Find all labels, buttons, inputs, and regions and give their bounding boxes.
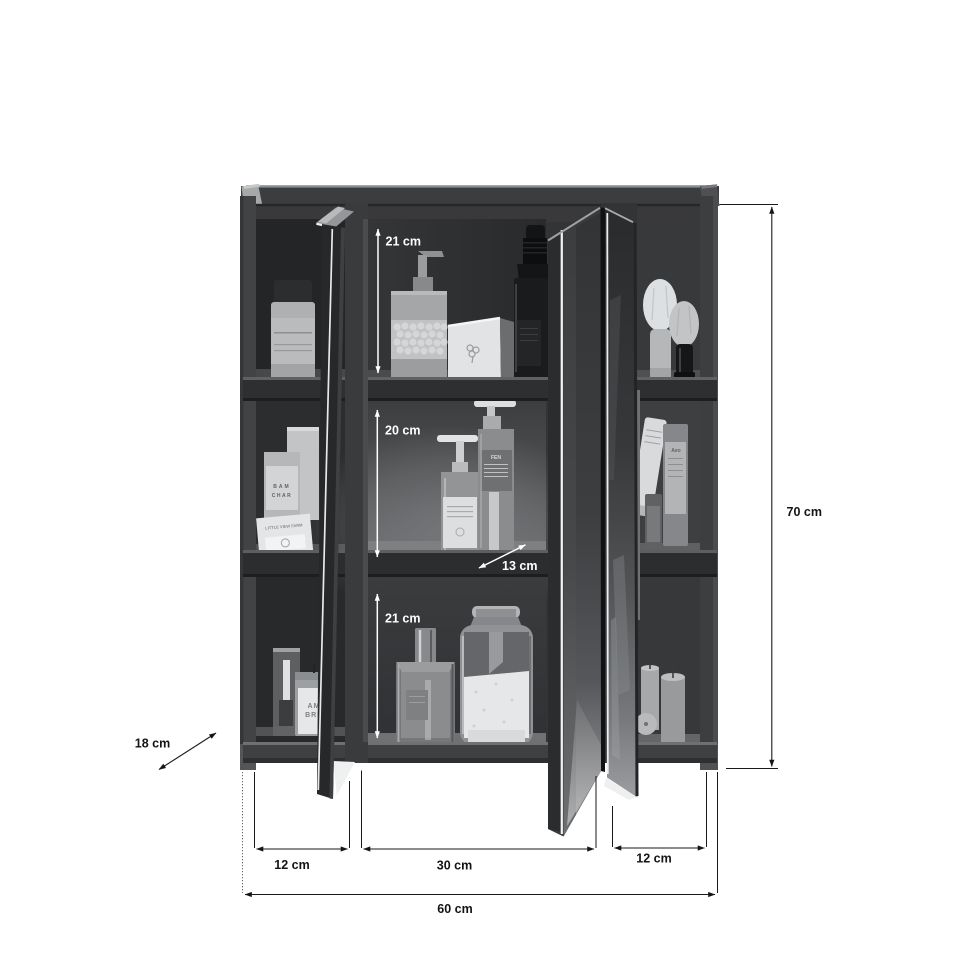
svg-text:CHAR: CHAR: [272, 493, 292, 499]
svg-text:60 cm: 60 cm: [437, 902, 472, 916]
svg-text:30 cm: 30 cm: [437, 859, 472, 873]
svg-text:18 cm: 18 cm: [135, 737, 170, 751]
svg-text:21 cm: 21 cm: [385, 612, 420, 626]
svg-text:12 cm: 12 cm: [274, 858, 309, 872]
svg-text:20 cm: 20 cm: [385, 424, 420, 438]
svg-text:13 cm: 13 cm: [502, 559, 537, 573]
svg-text:21 cm: 21 cm: [386, 235, 421, 249]
svg-text:FEN: FEN: [491, 455, 501, 461]
svg-text:BAM: BAM: [273, 484, 290, 490]
svg-text:12 cm: 12 cm: [636, 852, 671, 866]
svg-text:Aeo: Aeo: [671, 448, 680, 454]
svg-text:70 cm: 70 cm: [787, 505, 822, 519]
